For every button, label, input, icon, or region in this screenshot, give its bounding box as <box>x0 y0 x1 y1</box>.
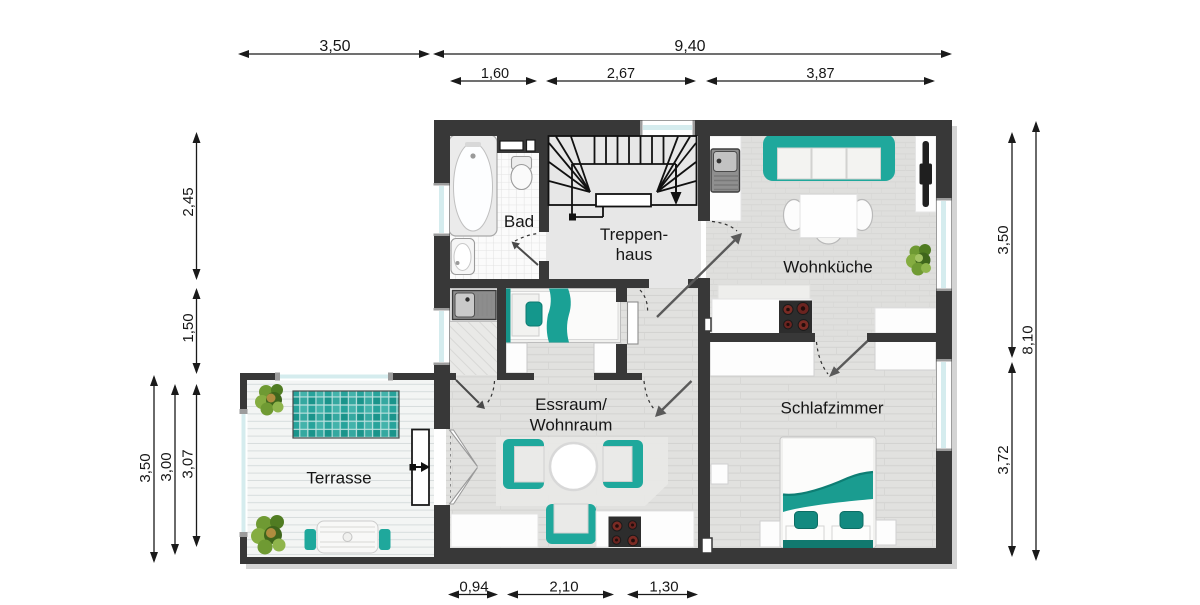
svg-text:9,40: 9,40 <box>674 38 705 55</box>
svg-text:3,87: 3,87 <box>806 66 834 82</box>
svg-text:2,10: 2,10 <box>549 579 578 596</box>
svg-text:1,60: 1,60 <box>481 66 509 82</box>
svg-text:3,07: 3,07 <box>180 449 197 478</box>
svg-text:2,67: 2,67 <box>607 66 635 82</box>
svg-text:0,94: 0,94 <box>459 579 488 596</box>
svg-text:Treppen-: Treppen- <box>600 225 668 244</box>
svg-text:Schlafzimmer: Schlafzimmer <box>781 399 884 418</box>
svg-text:8,10: 8,10 <box>1020 325 1037 354</box>
svg-text:Bad: Bad <box>504 212 534 231</box>
svg-text:Essraum/: Essraum/ <box>535 395 607 414</box>
svg-text:Terrasse: Terrasse <box>306 469 371 488</box>
svg-text:2,45: 2,45 <box>180 187 197 216</box>
svg-text:Wohnküche: Wohnküche <box>783 258 872 277</box>
svg-text:3,50: 3,50 <box>137 453 154 482</box>
svg-text:3,00: 3,00 <box>158 452 175 481</box>
svg-text:3,50: 3,50 <box>319 38 350 55</box>
svg-text:3,72: 3,72 <box>995 445 1012 474</box>
svg-text:1,30: 1,30 <box>649 579 678 596</box>
svg-text:1,50: 1,50 <box>180 313 197 342</box>
svg-text:haus: haus <box>616 245 653 264</box>
svg-text:Wohnraum: Wohnraum <box>530 416 613 435</box>
svg-text:3,50: 3,50 <box>995 225 1012 254</box>
